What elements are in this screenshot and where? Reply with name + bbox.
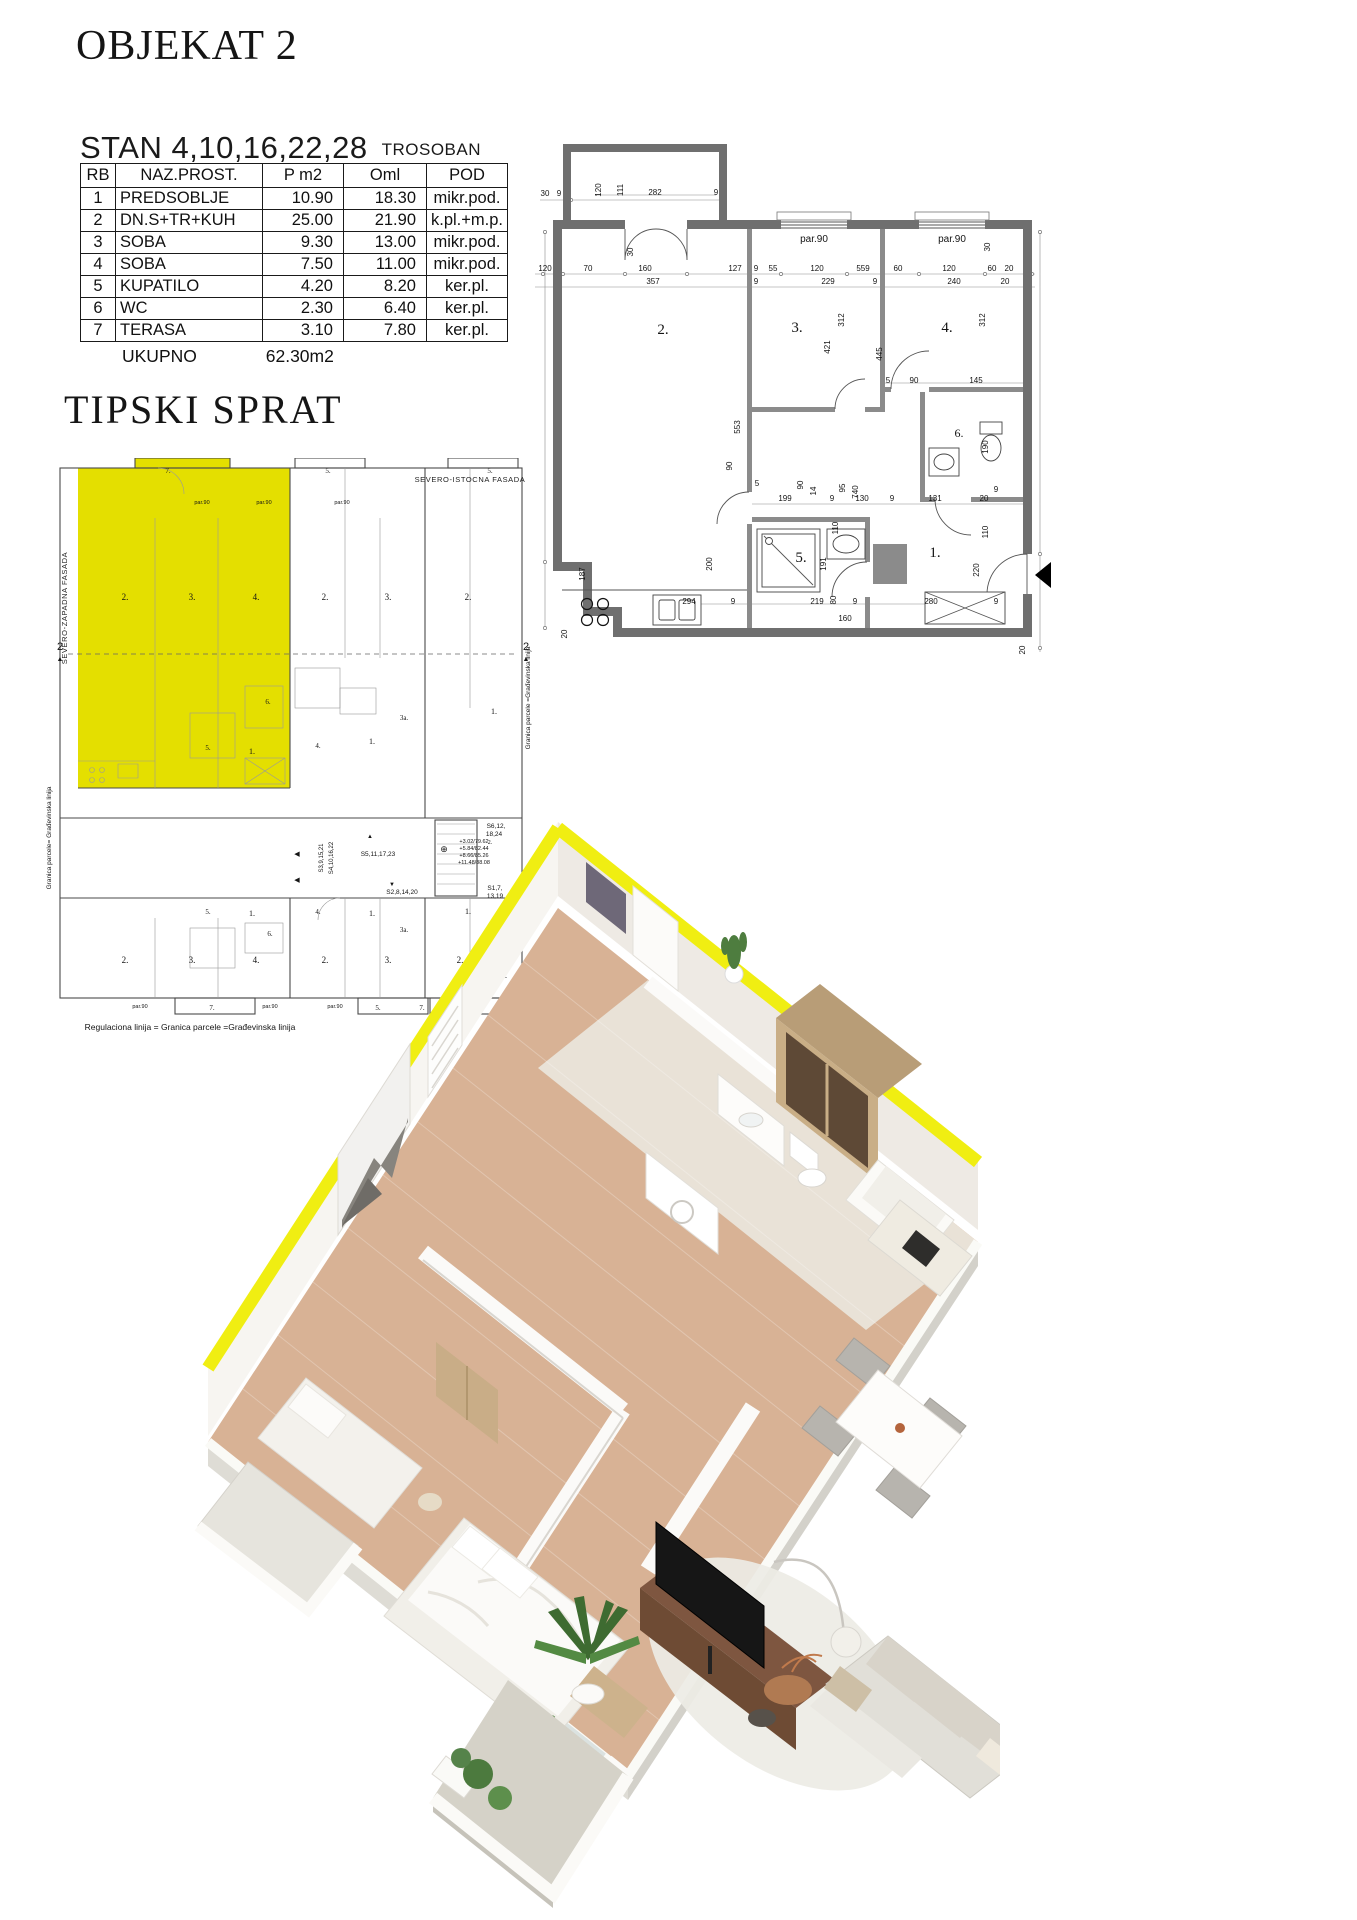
plan-label: 9 — [890, 494, 895, 503]
plan-label: 357 — [646, 277, 660, 286]
plan-label: 110 — [981, 525, 990, 538]
plan-label: 60 — [894, 264, 903, 273]
plan-label: 111 — [616, 183, 625, 196]
table-cell: 2 — [81, 210, 116, 232]
column-header: RB — [81, 164, 116, 188]
table-cell: 7 — [81, 320, 116, 342]
column-header: Oml — [344, 164, 427, 188]
highlighted-apartment — [78, 458, 290, 788]
plan-label: 14 — [809, 486, 818, 495]
table-header-row: RBNAZ.PROST.P m2OmlPOD — [81, 164, 508, 188]
plan-label: 9 — [853, 597, 858, 606]
plan-label: 9 — [994, 597, 999, 606]
table-cell: 5 — [81, 276, 116, 298]
table-cell: k.pl.+m.p. — [427, 210, 508, 232]
table-cell: 8.20 — [344, 276, 427, 298]
apartment-3d-render — [178, 822, 1000, 1920]
total-row: UKUPNO 62.30m2 — [122, 346, 334, 367]
plan-label: 191 — [819, 557, 828, 571]
apartment-heading: STAN 4,10,16,22,28TROSOBAN — [80, 130, 481, 166]
plan-label: 2 — [523, 641, 529, 653]
plan-label: par.90 — [194, 500, 209, 506]
table-row: 1PREDSOBLJE10.9018.30mikr.pod. — [81, 188, 508, 210]
plan-label: 120 — [594, 183, 603, 197]
table-row: 5KUPATILO4.208.20ker.pl. — [81, 276, 508, 298]
plan-label: 9 — [714, 188, 719, 197]
plan-label: par.90 — [334, 500, 349, 506]
table-row: 6WC2.306.40ker.pl. — [81, 298, 508, 320]
table-cell: ker.pl. — [427, 298, 508, 320]
room-number-label: 2. — [657, 322, 668, 338]
table-cell: mikr.pod. — [427, 188, 508, 210]
plan-label: 20 — [980, 494, 989, 503]
plan-label: 5 — [886, 376, 891, 385]
plan-label: 30 — [626, 247, 635, 256]
plan-label: 312 — [978, 313, 987, 327]
plan-label: 30 — [541, 189, 550, 198]
table-cell: PREDSOBLJE — [116, 188, 263, 210]
plan-label: par.90 — [800, 234, 828, 245]
plan-label: 131 — [928, 494, 942, 503]
table-cell: 2.30 — [263, 298, 344, 320]
plan-label: SEVERO-ISTOCNA FASADA — [415, 475, 526, 484]
plan-label: 160 — [838, 614, 852, 623]
column-header: NAZ.PROST. — [116, 164, 263, 188]
room-number-label: 4. — [253, 592, 260, 602]
plan-label: 187 — [578, 567, 587, 581]
table-cell: 21.90 — [344, 210, 427, 232]
plan-label: 90 — [910, 376, 919, 385]
page-title: OBJEKAT 2 — [76, 22, 298, 70]
column-header: POD — [427, 164, 508, 188]
room-number-label: 5. — [795, 550, 806, 566]
plan-label: 20 — [560, 629, 569, 638]
room-number-label: 2. — [322, 592, 329, 602]
plan-label: 282 — [648, 188, 662, 197]
plan-label: 9 — [994, 485, 999, 494]
table-cell: 13.00 — [344, 232, 427, 254]
room-number-label: 2. — [122, 955, 129, 965]
room-table: RBNAZ.PROST.P m2OmlPOD 1PREDSOBLJE10.901… — [80, 163, 508, 342]
plan-label: 9 — [830, 494, 835, 503]
plan-label: 120 — [942, 264, 956, 273]
plan-label: 5 — [755, 479, 760, 488]
table-cell: ker.pl. — [427, 320, 508, 342]
plan-label: par.90 — [938, 234, 966, 245]
plan-label: 9 — [557, 189, 562, 198]
table-cell: 25.00 — [263, 210, 344, 232]
table-cell: 11.00 — [344, 254, 427, 276]
plan-label: 559 — [856, 264, 870, 273]
plan-label: 130 — [855, 494, 869, 503]
table-cell: TERASA — [116, 320, 263, 342]
room-number-label: 1. — [929, 545, 940, 561]
room-number-label: 1. — [249, 747, 255, 756]
room-number-label: 5. — [325, 467, 331, 475]
plan-label: 190 — [981, 440, 990, 454]
plan-label: 20 — [1005, 264, 1014, 273]
plan-label: 2 — [57, 641, 63, 653]
table-cell: 10.90 — [263, 188, 344, 210]
table-row: 3SOBA9.3013.00mikr.pod. — [81, 232, 508, 254]
total-value: 62.30m2 — [266, 346, 334, 366]
plan-label: 20 — [1018, 645, 1027, 654]
plan-label: 80 — [829, 595, 838, 604]
plan-label: 421 — [823, 340, 832, 354]
table-cell: 18.30 — [344, 188, 427, 210]
table-cell: DN.S+TR+KUH — [116, 210, 263, 232]
plan-label: 145 — [969, 376, 983, 385]
room-number-label: 5. — [487, 467, 493, 475]
room-number-label: 5. — [205, 744, 211, 752]
plan-label: 60 — [988, 264, 997, 273]
plan-label: 199 — [778, 494, 792, 503]
apartment-type: TROSOBAN — [382, 140, 481, 159]
plan-label: 120 — [810, 264, 824, 273]
table-cell: 6 — [81, 298, 116, 320]
table-row: 2DN.S+TR+KUH25.0021.90k.pl.+m.p. — [81, 210, 508, 232]
room-number-label: 6. — [265, 698, 271, 706]
column-header: P m2 — [263, 164, 344, 188]
table-row: 4SOBA7.5011.00mikr.pod. — [81, 254, 508, 276]
plan-label: 120 — [538, 264, 552, 273]
apartment-floor-plan: 3091201112829301207016012795512055960120… — [535, 92, 1065, 670]
room-number-label: 2. — [465, 592, 472, 602]
room-number-label: 4. — [941, 320, 952, 336]
room-number-label: 6. — [955, 426, 964, 440]
table-cell: SOBA — [116, 254, 263, 276]
room-number-label: 3. — [791, 320, 802, 336]
table-cell: WC — [116, 298, 263, 320]
plan-label: 9 — [731, 597, 736, 606]
plan-label: 70 — [584, 264, 593, 273]
room-number-label: 3. — [189, 592, 196, 602]
vase — [895, 1423, 905, 1433]
chair-round — [418, 1493, 442, 1511]
table-cell: 3 — [81, 232, 116, 254]
plan-label: 200 — [705, 557, 714, 571]
table-cell: mikr.pod. — [427, 254, 508, 276]
plan-label: 127 — [728, 264, 742, 273]
table-cell: 4.20 — [263, 276, 344, 298]
plan-label: 95 — [838, 483, 847, 492]
table-cell: 4 — [81, 254, 116, 276]
plan-label: 220 — [972, 563, 981, 577]
plan-label: 110 — [831, 521, 840, 534]
room-number-label: 1. — [369, 737, 375, 746]
plan-label: par.90 — [132, 1004, 147, 1010]
plan-label: 9 — [873, 277, 878, 286]
plan-label: Granica parcele= Građevinska linija — [46, 786, 53, 889]
table-cell: 6.40 — [344, 298, 427, 320]
table-row: 7TERASA3.107.80ker.pl. — [81, 320, 508, 342]
table-cell: mikr.pod. — [427, 232, 508, 254]
table-cell: ker.pl. — [427, 276, 508, 298]
apartment-title: STAN 4,10,16,22,28 — [80, 130, 368, 165]
plan-label: 229 — [821, 277, 835, 286]
page: { "page": { "title": "OBJEKAT 2", "stan_… — [0, 0, 1357, 1920]
plan-label: ▲ — [523, 656, 530, 663]
plan-label: ▲ — [57, 656, 64, 663]
plan-label: 55 — [769, 264, 778, 273]
room-number-label: 4. — [315, 742, 321, 750]
plan-label: 160 — [638, 264, 652, 273]
plan-label: 294 — [682, 597, 696, 606]
total-label: UKUPNO — [122, 346, 197, 366]
plan-label: par.90 — [256, 500, 271, 506]
plan-label: 553 — [733, 420, 742, 434]
room-number-label: 2. — [122, 592, 129, 602]
room-number-label: 7. — [165, 467, 171, 475]
table-cell: 3.10 — [263, 320, 344, 342]
plan-label: 9 — [754, 264, 759, 273]
plan-label: 219 — [810, 597, 824, 606]
plan-label: 312 — [837, 313, 846, 327]
table-cell: 7.50 — [263, 254, 344, 276]
room-number-label: 3. — [385, 592, 392, 602]
plan-label: 9 — [754, 277, 759, 286]
room-number-label: 3a. — [400, 714, 409, 722]
section-title: TIPSKI SPRAT — [64, 386, 343, 433]
room-number-label: 1. — [491, 707, 497, 716]
plan-label: 20 — [1001, 277, 1010, 286]
plan-label: 90 — [796, 480, 805, 489]
plan-label: 30 — [983, 242, 992, 251]
plan-label: 280 — [924, 597, 938, 606]
plan-label: 240 — [947, 277, 961, 286]
fixtures — [562, 422, 1005, 626]
table-cell: SOBA — [116, 232, 263, 254]
plan-label: 445 — [875, 347, 884, 361]
table-cell: 1 — [81, 188, 116, 210]
table-cell: 7.80 — [344, 320, 427, 342]
plan-label: 90 — [725, 461, 734, 470]
table-cell: 9.30 — [263, 232, 344, 254]
table-cell: KUPATILO — [116, 276, 263, 298]
entrance-arrow-icon — [1035, 562, 1051, 588]
